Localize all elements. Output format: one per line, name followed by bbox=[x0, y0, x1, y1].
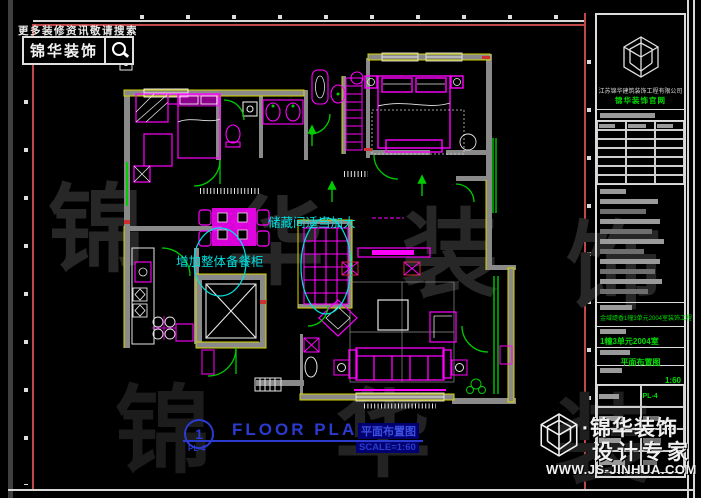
window-sill bbox=[354, 389, 446, 391]
desk-chair bbox=[134, 166, 150, 182]
scale-value: 1:60 bbox=[600, 376, 681, 385]
living-room bbox=[319, 248, 467, 382]
top-ruler-ticks bbox=[140, 15, 580, 19]
master-bed bbox=[378, 76, 450, 148]
plant bbox=[467, 379, 486, 394]
signature-table bbox=[597, 121, 684, 185]
right-frame-line-outer bbox=[693, 0, 695, 498]
left-red-line bbox=[32, 24, 34, 490]
room-field: 1幢3单元2004室 bbox=[597, 327, 684, 348]
speakers bbox=[342, 262, 420, 275]
sink bbox=[135, 262, 151, 282]
project-name-value: 金域缇香1幢3单元2004室装饰工程 bbox=[600, 313, 681, 322]
master-wardrobe bbox=[346, 78, 362, 150]
drawing-title-en: FLOOR PLAN bbox=[232, 420, 373, 440]
fridge bbox=[176, 324, 193, 341]
sofa bbox=[349, 348, 451, 380]
drawing-scale: SCALE=1:60 bbox=[356, 442, 419, 453]
balcony bbox=[467, 346, 513, 394]
vanity-sinks bbox=[263, 100, 303, 124]
title-block-logo-section: 江苏锦华建筑装饰工程有限公司 锦华装饰官网 bbox=[597, 15, 684, 110]
master-bedroom-furniture bbox=[365, 76, 476, 154]
elevator-shaft bbox=[206, 284, 256, 338]
wardrobe-hatched bbox=[136, 94, 168, 122]
drawing-title-cn: 平面布置图 bbox=[358, 423, 419, 439]
bed-single bbox=[178, 94, 220, 158]
shoe-cabinet bbox=[202, 350, 214, 374]
appliance-boxes bbox=[133, 288, 147, 317]
bathtub bbox=[312, 70, 328, 104]
annotation-storage-text: 储藏间适当加大 bbox=[268, 215, 356, 230]
brand-name: 锦华装饰 bbox=[24, 40, 104, 61]
sheet-no-value: PL-4 bbox=[643, 393, 658, 400]
floor-plan-drawing: 储藏间适当加大 增加整体备餐柜 bbox=[116, 50, 528, 410]
brand-cube-icon bbox=[538, 412, 580, 460]
brand-search-box[interactable]: 锦华装饰 bbox=[22, 36, 134, 65]
company-name: 江苏锦华建筑装饰工程有限公司 bbox=[599, 85, 683, 94]
stool bbox=[460, 134, 476, 150]
annotation-storage: 储藏间适当加大 bbox=[268, 215, 404, 314]
cad-sheet: { "topbar": {"hint": "更多装修资讯敬请搜索", "bran… bbox=[0, 0, 701, 498]
brand-dot: · bbox=[582, 417, 590, 440]
notes-section bbox=[597, 185, 684, 303]
title-block: 江苏锦华建筑装饰工程有限公司 锦华装饰官网 金域缇香1幢3单元2004室装饰工程 bbox=[595, 13, 686, 478]
armchair bbox=[430, 312, 456, 342]
company-cube-logo bbox=[621, 35, 661, 81]
room-value: 1幢3单元2004室 bbox=[600, 336, 681, 347]
title-block-bar-row bbox=[597, 110, 684, 121]
gas-stove bbox=[152, 316, 176, 340]
shower bbox=[243, 102, 257, 116]
left-margin-strip bbox=[8, 0, 13, 498]
entry-wc bbox=[304, 338, 319, 377]
top-frame-line bbox=[33, 20, 584, 22]
bath1-fixtures bbox=[226, 102, 257, 147]
project-name-field: 金域缇香1幢3单元2004室装饰工程 bbox=[597, 303, 684, 327]
left-ruler-ticks bbox=[24, 100, 28, 485]
coffee-table bbox=[378, 300, 408, 330]
sheet-number: PL-4 bbox=[188, 444, 205, 453]
right-frame-line-inner bbox=[687, 0, 689, 498]
brand-url[interactable]: WWW.JS-JINHUA.COM bbox=[546, 462, 697, 477]
storage-shelves bbox=[304, 228, 348, 304]
annotation-cabinet-text: 增加整体备餐柜 bbox=[176, 254, 264, 269]
side-tables bbox=[334, 360, 467, 375]
search-icon[interactable] bbox=[106, 38, 132, 63]
scale-field: 1:60 bbox=[597, 366, 684, 385]
toilet bbox=[226, 125, 240, 143]
tv bbox=[372, 250, 414, 255]
nightstand-right bbox=[451, 76, 463, 88]
bedroom1-furniture bbox=[134, 94, 220, 182]
desk bbox=[144, 134, 172, 166]
company-badge: 锦华装饰官网 bbox=[615, 95, 666, 106]
bath2-fixtures bbox=[312, 70, 363, 104]
drawing-name-field: 平面布置图 bbox=[597, 348, 684, 366]
